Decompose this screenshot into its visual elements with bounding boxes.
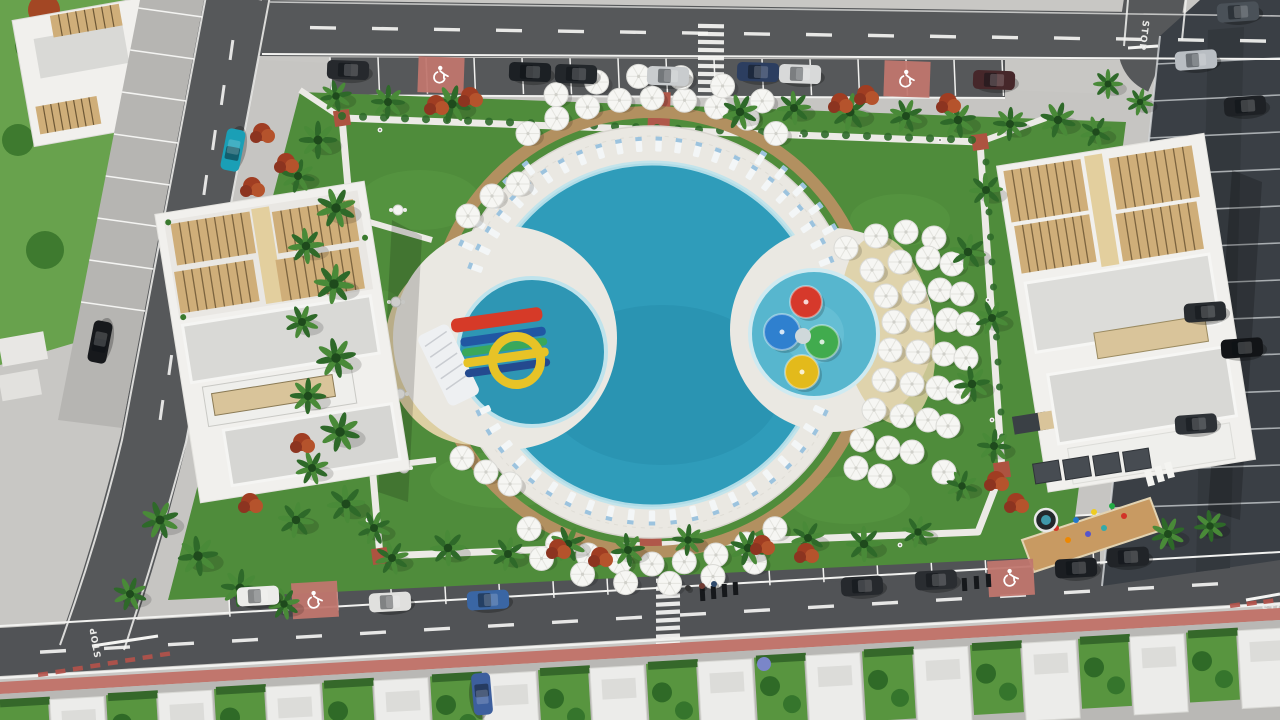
palm-crown (1105, 81, 1112, 88)
parasol-pole (466, 214, 469, 217)
villa-roof-detail (1249, 640, 1280, 662)
car-roof (1192, 417, 1207, 430)
palm-crown (968, 380, 977, 389)
red-flower-bush (865, 91, 879, 105)
car-roof (1192, 53, 1207, 66)
crosswalk-stripe (698, 48, 724, 53)
parasol-pole (910, 450, 913, 453)
hedge-bush (485, 118, 493, 126)
palm-crown (1006, 120, 1014, 128)
parasol-pole (884, 294, 887, 297)
parasol-pole (926, 418, 929, 421)
pedestrian (711, 581, 717, 587)
palm-crown (954, 116, 963, 125)
palm-crown (444, 544, 453, 553)
parasol-pole (950, 262, 953, 265)
sunbed (635, 137, 642, 152)
garden-tree (999, 683, 1017, 701)
hedge-bush (863, 132, 871, 140)
palm-crown (914, 528, 922, 536)
hedge-bush (338, 112, 346, 120)
entrance-pergola (1038, 411, 1055, 431)
motorcycle (974, 576, 980, 589)
villa-roof (1130, 634, 1188, 715)
garden-tree (544, 689, 564, 709)
play-equipment (1065, 537, 1071, 543)
lane-dash (372, 27, 398, 31)
garden-lamp-top (799, 135, 801, 137)
car-roof (1072, 561, 1087, 574)
palm-crown (1054, 116, 1063, 125)
red-flower-bush (599, 553, 613, 567)
garden-tree (1192, 651, 1212, 671)
parasol-pole (904, 230, 907, 233)
palm-crown (332, 92, 340, 100)
motorcycle (722, 584, 728, 597)
palm-crown (126, 590, 134, 598)
parasol-pole (516, 182, 519, 185)
red-flower-bush (854, 93, 866, 105)
parasol-pole (668, 582, 671, 585)
parasol-pole (946, 424, 949, 427)
parasol-pole (711, 575, 714, 578)
garden-tree (783, 695, 801, 713)
car-roof (858, 579, 873, 592)
crosswalk-stripe (698, 56, 724, 61)
red-flower-bush (261, 129, 275, 143)
parasol-pole (618, 99, 621, 102)
red-flower-bush (984, 479, 996, 491)
parasol-pole (490, 194, 493, 197)
red-flower-bush (828, 101, 840, 113)
villa-roof-detail (169, 703, 204, 720)
sunbed-cushion (627, 520, 634, 525)
parasol-pole (624, 581, 627, 584)
red-flower-bush (458, 95, 470, 107)
palm-crown (988, 314, 996, 322)
palm-crown (156, 516, 165, 525)
palm-crown (314, 136, 323, 145)
tree (2, 124, 34, 156)
red-flower-bush (424, 103, 436, 115)
palm-crown (504, 550, 512, 558)
red-flower-bush (250, 131, 262, 143)
parasol-pole (964, 356, 967, 359)
garden-pergola-canopy (1033, 460, 1062, 484)
hedge-bush (968, 136, 976, 144)
car-roof (572, 68, 586, 80)
red-flower-bush (750, 543, 762, 555)
red-flower-bush (285, 159, 299, 173)
palm-crown (342, 500, 351, 509)
lane-dash (1054, 36, 1080, 40)
palm-crown (624, 546, 632, 554)
play-structure (795, 328, 811, 344)
hedge-bush (884, 133, 892, 141)
mushroom-top (804, 300, 809, 305)
site-plan-svg: STOPSTOPSTOP (0, 0, 1280, 720)
parasol-pole (910, 382, 913, 385)
palm-crown (331, 203, 341, 213)
round-feature-center (1041, 515, 1051, 525)
lane-dash (992, 35, 1018, 39)
villa-roof-detail (601, 678, 636, 700)
palm-crown (388, 554, 396, 562)
garden-pergola-canopy (1123, 448, 1152, 472)
lane-dash (806, 33, 832, 37)
lane-dash (744, 32, 770, 36)
parasol-pole (586, 105, 589, 108)
hedge-bush (996, 384, 1003, 391)
play-equipment (1121, 513, 1127, 519)
villa-roof-detail (709, 671, 744, 693)
red-flower-bush (249, 499, 263, 513)
mushroom-top (820, 340, 825, 345)
palm-crown (804, 534, 812, 542)
hedge-bush (926, 134, 934, 142)
parasol-pole (761, 99, 764, 102)
garden-chair (389, 208, 393, 212)
hedge-bush (986, 209, 993, 216)
lane-dash (496, 28, 522, 32)
parasol-pole (942, 352, 945, 355)
parasol-pole (942, 470, 945, 473)
car-roof (1241, 99, 1256, 112)
lane-dash (434, 28, 460, 32)
car-roof (932, 573, 947, 586)
parasol-pole (637, 75, 640, 78)
parasol-pole (555, 117, 558, 120)
garden-tree (1215, 670, 1233, 688)
hedge-bush (998, 409, 1005, 416)
palm-crown (308, 464, 316, 472)
parasol-pole (912, 290, 915, 293)
parasol-pole (854, 466, 857, 469)
garden-tree (652, 682, 672, 702)
parasol-pole (920, 318, 923, 321)
hedge-bush (359, 113, 367, 121)
parasol-pole (683, 99, 686, 102)
crosswalk-stripe (698, 40, 724, 45)
hedge-bush (842, 131, 850, 139)
red-flower-bush (588, 555, 600, 567)
sunbed-cushion (670, 520, 677, 525)
lane-dash (930, 35, 956, 39)
palm-crown (902, 112, 910, 120)
villa-roof (1238, 628, 1280, 709)
hedge-bush (993, 334, 1000, 341)
sunbed (655, 137, 662, 152)
villa-roof-detail (277, 697, 312, 719)
parasol-pole (936, 386, 939, 389)
tree (26, 231, 64, 269)
parasol-pole (892, 320, 895, 323)
parasol-pole (966, 322, 969, 325)
red-flower-bush (274, 161, 286, 173)
parasol-pole (484, 470, 487, 473)
palm-crown (684, 536, 692, 544)
car-roof (1238, 341, 1253, 354)
lane-dash (620, 30, 646, 34)
crosswalk-stripe (698, 24, 724, 29)
lane-dash (310, 26, 336, 30)
car-roof (990, 74, 1004, 86)
palm-crown (294, 172, 302, 180)
car-roof (526, 66, 540, 78)
parasol-pole (946, 318, 949, 321)
hedge-bush (947, 135, 955, 143)
villa-roof-detail (1141, 646, 1176, 668)
parasol-pole (872, 408, 875, 411)
parasol-pole (886, 446, 889, 449)
parasol-pole (527, 527, 530, 530)
parasol-pole (555, 93, 558, 96)
red-flower-bush (1015, 499, 1029, 513)
hedge-bush (422, 115, 430, 123)
palm-crown (298, 318, 306, 326)
car-roof (1234, 5, 1249, 18)
motorcycle (733, 582, 739, 595)
pedestrian (685, 585, 691, 591)
hedge-bush (995, 359, 1002, 366)
motorcycle (962, 578, 968, 591)
palm-crown (958, 482, 966, 490)
lane-dash (1240, 39, 1266, 43)
palm-crown (292, 516, 301, 525)
car-roof (796, 68, 810, 80)
parasol-pole (581, 573, 584, 576)
parasol-pole (916, 350, 919, 353)
garden-tree (436, 695, 456, 715)
parasol-pole (956, 390, 959, 393)
parasol-pole (460, 456, 463, 459)
play-equipment (1073, 517, 1079, 523)
parasol-pole (526, 132, 529, 135)
parasol-pole (844, 246, 847, 249)
lane-dash (558, 29, 584, 33)
crosswalk-stripe (698, 32, 724, 37)
aerial-render: Bird's-eye 3D rendering of a resort apar… (0, 0, 1280, 720)
play-equipment (1085, 531, 1091, 537)
villa-roof-detail (493, 684, 528, 706)
car-roof (476, 689, 489, 704)
red-flower-bush (839, 99, 853, 113)
garden-lamp-top (991, 419, 993, 421)
parasol-pole (938, 288, 941, 291)
palm-crown (302, 242, 311, 251)
car-roof (754, 66, 768, 78)
garden-tree (675, 701, 693, 719)
garden-tree (760, 676, 780, 696)
hedge-bush (821, 130, 829, 138)
red-flower-bush (290, 441, 302, 453)
hedge-bush (506, 118, 514, 126)
parasol-pole (926, 256, 929, 259)
garden-table (393, 205, 403, 215)
hedge-bush (990, 284, 997, 291)
hedge-bush (905, 134, 913, 142)
sunbed-cushion (655, 137, 662, 141)
palm-crown (982, 186, 990, 194)
red-flower-bush (238, 501, 250, 513)
palm-crown (964, 248, 973, 257)
parasol-pole (650, 562, 653, 565)
villa-roof-detail (385, 690, 420, 712)
apartment-building-left (155, 181, 410, 503)
palm-crown (790, 104, 798, 112)
garden-tree (1084, 657, 1104, 677)
lane-dash (868, 34, 894, 38)
parasol-pole (715, 105, 718, 108)
parasol-pole (900, 414, 903, 417)
parasol-pole (878, 474, 881, 477)
red-flower-bush (936, 101, 948, 113)
villa-roof (1022, 640, 1080, 720)
sunbed-cushion (635, 137, 642, 141)
car-roof (1201, 305, 1216, 318)
parasol-pole (508, 482, 511, 485)
red-flower-bush (761, 541, 775, 555)
garden-tree (868, 670, 888, 690)
palm-crown (736, 108, 745, 117)
villa-roof-detail (925, 659, 960, 681)
parasol-pole (898, 260, 901, 263)
villa-roof-detail (1033, 653, 1068, 675)
hedge-bush (983, 159, 990, 166)
red-flower-bush (251, 183, 265, 197)
crosswalk-stripe (698, 64, 724, 69)
mushroom-top (800, 370, 805, 375)
villa-roof (806, 653, 864, 720)
red-flower-bush (301, 439, 315, 453)
red-flower-bush (995, 477, 1009, 491)
palm-crown (335, 427, 345, 437)
parasol-pole (650, 96, 653, 99)
car-roof (386, 595, 401, 608)
palm-crown (304, 392, 313, 401)
parasol-pole (882, 378, 885, 381)
parasol-pole (870, 268, 873, 271)
red-flower-bush (557, 545, 571, 559)
palm-crown (1206, 522, 1214, 530)
red-flower-bush (794, 551, 806, 563)
red-flower-bush (805, 549, 819, 563)
parasol-pole (888, 348, 891, 351)
red-flower-bush (947, 99, 961, 113)
garden-tree (1107, 676, 1125, 694)
garden-tree (891, 689, 909, 707)
garden-tree (976, 664, 996, 684)
mushroom-top (780, 330, 785, 335)
palm-crown (384, 98, 392, 106)
parasol-pole (721, 84, 724, 87)
parasol-pole (860, 438, 863, 441)
garden-lamp-top (939, 139, 941, 141)
hedge-bush (987, 234, 994, 241)
palm-crown (193, 551, 203, 561)
pedestrian (699, 583, 705, 589)
palm-crown (370, 524, 378, 532)
parasol-pole (540, 557, 543, 560)
parasol-pole (960, 292, 963, 295)
play-equipment (1109, 503, 1115, 509)
play-equipment (1091, 509, 1097, 515)
palm-crown (990, 442, 998, 450)
garden-lamp-top (987, 299, 989, 301)
car-roof (254, 589, 269, 602)
play-equipment (1101, 525, 1107, 531)
palm-crown (329, 279, 339, 289)
parasol-pole (714, 553, 717, 556)
red-flower-bush (1004, 501, 1016, 513)
car-roof (484, 593, 499, 606)
red-flower-bush (546, 547, 558, 559)
parasol-pole (932, 236, 935, 239)
palm-crown (860, 540, 869, 549)
motorcycle (986, 574, 992, 587)
garden-pergola-canopy (1063, 456, 1092, 480)
disabled-parking-stall (987, 559, 1035, 598)
villa-roof-detail (817, 665, 852, 687)
sunbed (649, 511, 655, 526)
palm-crown (1137, 99, 1144, 106)
palm-crown (1092, 128, 1100, 136)
palm-crown (331, 353, 341, 363)
disabled-parking-stall (883, 60, 930, 98)
car-roof (1124, 550, 1139, 563)
car-roof (344, 64, 358, 76)
parasol-pole (773, 527, 776, 530)
parasol-pole (683, 560, 686, 563)
red-flower-bush (240, 185, 252, 197)
red-flower-bush (469, 93, 483, 107)
parasol-pole (774, 132, 777, 135)
garden-lamp-top (899, 544, 901, 546)
hedge-bush (401, 114, 409, 122)
garden-chair (403, 208, 407, 212)
flower-bush (757, 657, 771, 671)
garden-lamp-top (379, 129, 381, 131)
car-roof (664, 70, 678, 82)
parasol-pole (874, 234, 877, 237)
red-flower-bush (435, 101, 449, 115)
garden-pergola-canopy (1093, 452, 1122, 476)
sunbed-cushion (649, 522, 655, 526)
palm-crown (1164, 530, 1172, 538)
villa-roof (914, 646, 972, 720)
